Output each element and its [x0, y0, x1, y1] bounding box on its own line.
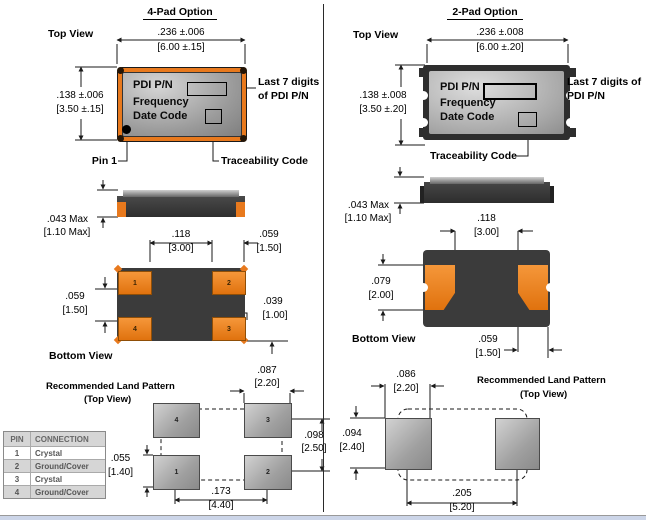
- bottom-pad-1: 1: [118, 271, 152, 295]
- left-thickness-mm: [1.10 Max]: [36, 227, 98, 239]
- left-bv-edge-in: .039: [250, 296, 296, 308]
- left-width-dim-in: .236 ±.006: [145, 27, 217, 39]
- table-header-row: PIN CONNECTION: [4, 432, 105, 446]
- land-pad-left: [385, 418, 432, 470]
- right-bottom-view-label: Bottom View: [352, 333, 415, 345]
- right-bv-padw-in: .059: [468, 334, 508, 346]
- side-notch: [419, 91, 428, 100]
- right-callout-line2: PDI P/N: [567, 90, 605, 102]
- pin-header: PIN: [4, 432, 31, 446]
- table-row: 1 Crystal: [4, 446, 105, 459]
- land-pad-4: 4: [153, 403, 200, 438]
- right-side-view-body: [424, 182, 550, 203]
- traceability-box: [205, 109, 222, 124]
- side-notch: [419, 283, 428, 292]
- right-land-pattern-subtitle: (Top View): [520, 389, 567, 400]
- corner-castellation: [240, 135, 247, 142]
- pin1-dot: [122, 125, 131, 134]
- left-bv-span-mm: [3.00]: [150, 243, 212, 255]
- left-thickness-in: .043 Max: [40, 214, 95, 226]
- connection-cell: Crystal: [31, 475, 105, 484]
- right-title: 2-Pad Option: [447, 6, 523, 20]
- chip-marking-line3: Date Code: [440, 111, 494, 124]
- land-pad-1: 1: [153, 455, 200, 490]
- right-land-pattern-title: Recommended Land Pattern: [477, 375, 606, 386]
- left-land-pattern-subtitle: (Top View): [84, 394, 131, 405]
- left-lp-colpitch-in: .173: [190, 486, 252, 498]
- left-lp-padw-mm: [2.20]: [245, 378, 289, 390]
- corner-castellation: [117, 67, 124, 74]
- right-lp-pitch-mm: [5.20]: [430, 502, 494, 514]
- right-thickness-in: .043 Max: [341, 200, 396, 212]
- left-lp-padh-in: .055: [100, 453, 141, 465]
- right-traceability-label: Traceability Code: [430, 150, 517, 162]
- right-top-view-label: Top View: [353, 29, 398, 41]
- left-bv-edge-mm: [1.00]: [252, 310, 298, 322]
- right-lp-pitch-in: .205: [430, 488, 494, 500]
- left-bv-padh-mm: [1.50]: [53, 305, 97, 317]
- chip-marking-line1: PDI P/N: [440, 81, 480, 94]
- left-side-pad: [236, 202, 245, 217]
- connection-cell: Crystal: [31, 449, 105, 458]
- pin-cell: 4: [4, 486, 31, 498]
- table-row: 2 Ground/Cover: [4, 459, 105, 472]
- left-lp-rowpitch-in: .098: [296, 430, 332, 442]
- left-callout-line1: Last 7 digits: [258, 76, 319, 88]
- bottom-pad-2: 2: [212, 271, 246, 295]
- left-height-dim-in: .138 ±.006: [50, 90, 110, 102]
- right-bv-padh-in: .079: [362, 276, 400, 288]
- left-land-pattern-title: Recommended Land Pattern: [46, 381, 175, 392]
- bottom-pad-3: 3: [212, 317, 246, 341]
- land-pad-right: [495, 418, 540, 470]
- right-callout-line1: Last 7 digits of: [567, 76, 641, 88]
- right-bv-padw-mm: [1.50]: [466, 348, 510, 360]
- chip-marking-line2: Frequency: [133, 96, 189, 109]
- left-lp-colpitch-mm: [4.40]: [190, 500, 252, 512]
- right-lp-padh-in: .094: [333, 428, 371, 440]
- right-bv-span-mm: [3.00]: [455, 227, 518, 239]
- left-width-dim-mm: [6.00 ±.15]: [145, 42, 217, 54]
- left-title: 4-Pad Option: [143, 6, 217, 20]
- side-notch: [566, 118, 575, 127]
- right-bv-span-in: .118: [455, 213, 518, 225]
- right-width-dim-in: .236 ±.008: [464, 27, 536, 39]
- chip-marking-line3: Date Code: [133, 110, 187, 123]
- land-pad-3: 3: [244, 403, 292, 438]
- right-lp-padw-in: .086: [385, 369, 427, 381]
- chip-marking-line1: PDI P/N: [133, 79, 173, 92]
- left-bv-padw-mm: [1.50]: [248, 243, 290, 255]
- left-lp-padw-in: .087: [245, 365, 289, 377]
- left-side-view-body: [117, 196, 245, 217]
- right-height-dim-in: .138 ±.008: [352, 90, 414, 102]
- left-top-view-label: Top View: [48, 28, 93, 40]
- left-side-view-lid: [123, 190, 239, 197]
- part-number-box: [187, 82, 227, 96]
- right-bv-padh-mm: [2.00]: [360, 290, 402, 302]
- left-callout-line2: of PDI P/N: [258, 90, 309, 102]
- left-lp-rowpitch-mm: [2.50]: [296, 443, 332, 455]
- bottom-pad-4: 4: [118, 317, 152, 341]
- land-pad-2: 2: [244, 455, 292, 490]
- left-bv-padw-in: .059: [248, 229, 290, 241]
- traceability-box: [518, 112, 537, 127]
- pin1-label: Pin 1: [90, 155, 117, 167]
- table-row: 3 Crystal: [4, 472, 105, 485]
- connection-cell: Ground/Cover: [31, 488, 105, 497]
- left-bv-padh-in: .059: [55, 291, 95, 303]
- side-notch: [419, 118, 428, 127]
- right-lp-padw-mm: [2.20]: [384, 383, 428, 395]
- right-thickness-mm: [1.10 Max]: [337, 213, 399, 225]
- part-number-box: [483, 83, 537, 100]
- pin-cell: 2: [4, 460, 31, 472]
- pin-connection-table: PIN CONNECTION 1 Crystal 2 Ground/Cover …: [3, 431, 106, 499]
- left-height-dim-mm: [3.50 ±.15]: [48, 104, 112, 116]
- right-side-view-lid: [430, 177, 544, 184]
- right-height-dim-mm: [3.50 ±.20]: [350, 104, 416, 116]
- right-lp-padh-mm: [2.40]: [331, 442, 373, 454]
- table-row: 4 Ground/Cover: [4, 485, 105, 498]
- footer-bar: [0, 515, 646, 520]
- left-bv-span-in: .118: [150, 229, 212, 241]
- left-side-pad: [117, 202, 126, 217]
- connection-cell: Ground/Cover: [31, 462, 105, 471]
- right-width-dim-mm: [6.00 ±.20]: [464, 42, 536, 54]
- pin-cell: 1: [4, 447, 31, 459]
- side-notch: [546, 283, 555, 292]
- corner-castellation: [240, 67, 247, 74]
- corner-castellation: [117, 135, 124, 142]
- corner-ear: [570, 128, 576, 137]
- connection-header: CONNECTION: [31, 435, 105, 444]
- package-dimension-drawing: 4-Pad Option Top View .236 ±.006 [6.00 ±…: [0, 0, 646, 520]
- pin-cell: 3: [4, 473, 31, 485]
- left-traceability-label: Traceability Code: [221, 155, 308, 167]
- left-bottom-view-label: Bottom View: [49, 350, 112, 362]
